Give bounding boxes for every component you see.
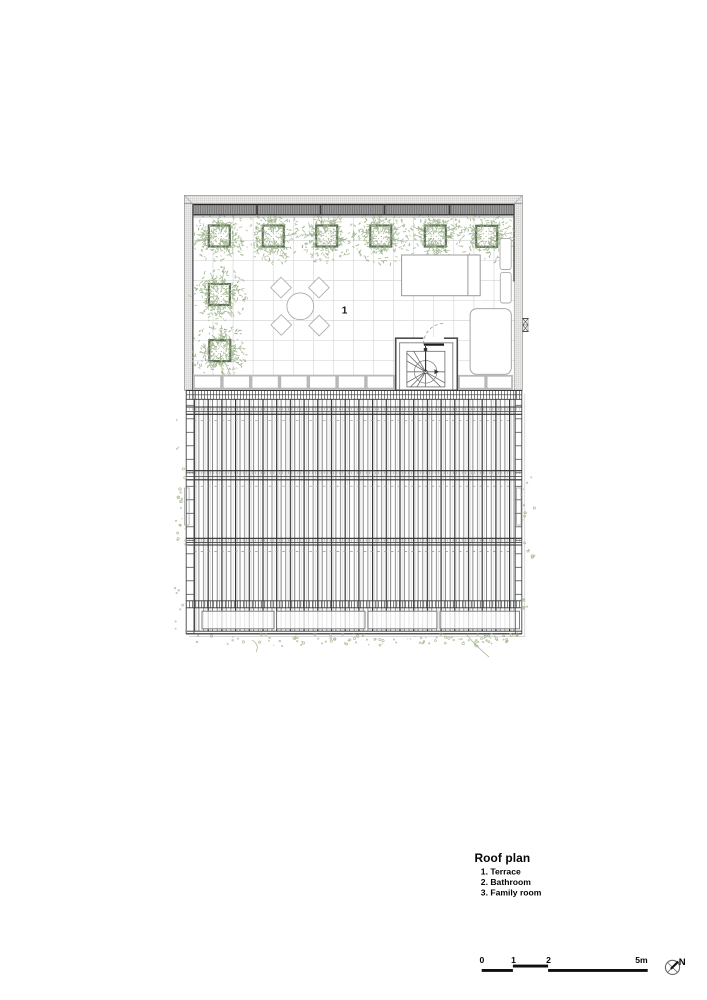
- svg-text:N: N: [679, 957, 686, 968]
- svg-text:0: 0: [480, 955, 485, 965]
- svg-text:1: 1: [511, 955, 516, 965]
- svg-text:1: 1: [342, 306, 348, 317]
- svg-text:2: 2: [546, 955, 551, 965]
- svg-text:2. Bathroom: 2. Bathroom: [481, 877, 531, 887]
- svg-text:5m: 5m: [635, 955, 648, 965]
- svg-text:Roof plan: Roof plan: [475, 851, 531, 865]
- svg-text:1. Terrace: 1. Terrace: [481, 867, 521, 877]
- svg-text:3. Family room: 3. Family room: [481, 888, 542, 898]
